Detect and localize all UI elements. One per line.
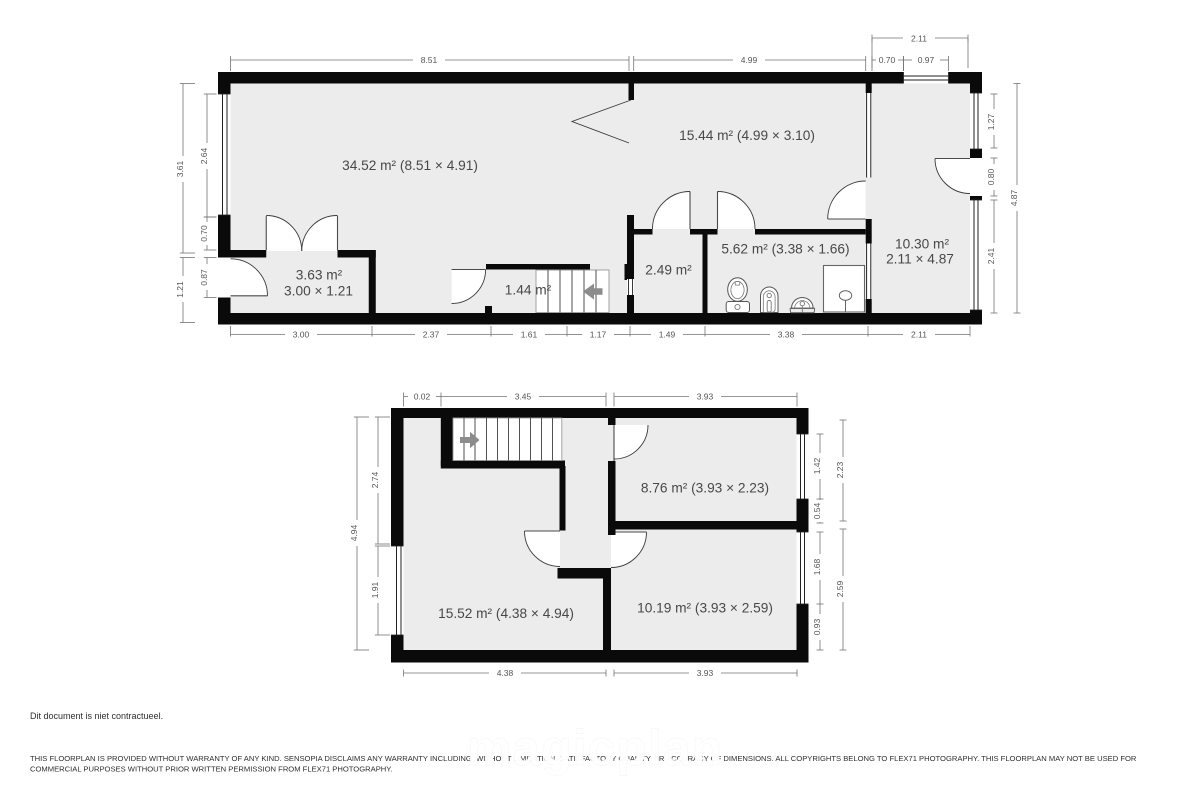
- svg-text:0.93: 0.93: [812, 618, 822, 635]
- svg-text:10.19 m² (3.93 × 2.59): 10.19 m² (3.93 × 2.59): [637, 601, 773, 616]
- svg-text:3.93: 3.93: [697, 392, 714, 402]
- svg-text:1.17: 1.17: [590, 330, 607, 340]
- svg-text:2.23: 2.23: [835, 461, 845, 478]
- svg-text:8.51: 8.51: [421, 55, 438, 65]
- svg-text:2.49 m²: 2.49 m²: [645, 263, 692, 278]
- svg-text:15.44 m² (4.99 × 3.10): 15.44 m² (4.99 × 3.10): [679, 128, 815, 143]
- svg-text:0.97: 0.97: [918, 55, 935, 65]
- svg-text:1.49: 1.49: [659, 330, 676, 340]
- svg-text:1.68: 1.68: [812, 558, 822, 575]
- svg-text:2.37: 2.37: [423, 330, 440, 340]
- svg-text:2.11: 2.11: [911, 33, 927, 43]
- svg-text:COMMERCIAL PURPOSES WITHOUT PR: COMMERCIAL PURPOSES WITHOUT PRIOR WRITTE…: [30, 765, 392, 774]
- svg-text:15.52 m² (4.38 × 4.94): 15.52 m² (4.38 × 4.94): [438, 606, 574, 621]
- svg-text:1.21: 1.21: [175, 281, 185, 298]
- svg-text:1.44 m²: 1.44 m²: [505, 283, 552, 298]
- svg-text:4.99: 4.99: [741, 55, 758, 65]
- svg-text:Dit document is niet contractu: Dit document is niet contractueel.: [30, 711, 163, 721]
- svg-text:8.76 m² (3.93 × 2.23): 8.76 m² (3.93 × 2.23): [641, 481, 769, 496]
- svg-text:5.62 m² (3.38 × 1.66): 5.62 m² (3.38 × 1.66): [721, 242, 849, 257]
- svg-text:2.74: 2.74: [370, 471, 380, 488]
- svg-text:1.91: 1.91: [370, 581, 380, 598]
- svg-text:3.61: 3.61: [175, 160, 185, 177]
- svg-text:4.94: 4.94: [349, 524, 359, 541]
- svg-text:0.80: 0.80: [986, 168, 996, 185]
- svg-text:4.38: 4.38: [497, 668, 514, 678]
- svg-text:1.61: 1.61: [521, 330, 538, 340]
- svg-text:0.87: 0.87: [199, 269, 209, 286]
- svg-text:3.38: 3.38: [778, 330, 795, 340]
- svg-text:2.11 × 4.87: 2.11 × 4.87: [886, 252, 954, 267]
- svg-text:2.59: 2.59: [835, 580, 845, 597]
- svg-text:3.00: 3.00: [293, 330, 310, 340]
- svg-text:2.11: 2.11: [911, 330, 927, 340]
- svg-text:10.30 m²: 10.30 m²: [895, 237, 949, 252]
- svg-text:3.45: 3.45: [515, 392, 532, 402]
- svg-text:0.70: 0.70: [199, 225, 209, 242]
- svg-text:0.54: 0.54: [812, 502, 822, 519]
- svg-text:1.42: 1.42: [812, 457, 822, 474]
- svg-text:0.02: 0.02: [414, 392, 431, 402]
- svg-text:4.87: 4.87: [1009, 189, 1019, 206]
- svg-text:2.64: 2.64: [199, 147, 209, 164]
- svg-text:magicplan: magicplan: [467, 720, 723, 776]
- svg-text:0.70: 0.70: [879, 55, 896, 65]
- svg-text:3.93: 3.93: [697, 668, 714, 678]
- svg-text:1.27: 1.27: [986, 113, 996, 130]
- svg-text:2.41: 2.41: [986, 247, 996, 264]
- svg-text:3.00 × 1.21: 3.00 × 1.21: [284, 284, 353, 299]
- svg-text:3.63 m²: 3.63 m²: [296, 268, 343, 283]
- svg-text:34.52 m² (8.51 × 4.91): 34.52 m² (8.51 × 4.91): [342, 158, 478, 173]
